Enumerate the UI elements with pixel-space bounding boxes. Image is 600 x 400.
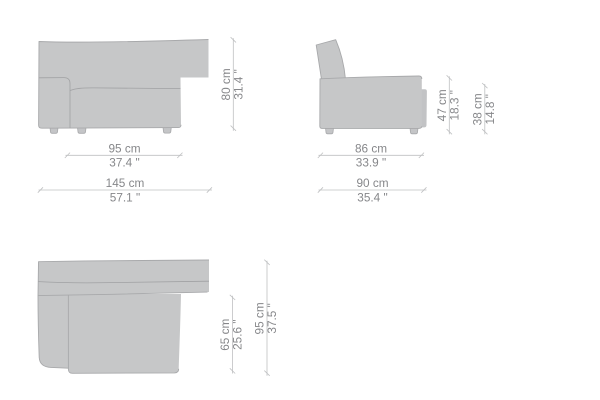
svg-text:31.4 ": 31.4 " xyxy=(231,69,245,99)
svg-text:90 cm: 90 cm xyxy=(356,176,388,190)
svg-text:25.6 ": 25.6 " xyxy=(231,319,245,349)
svg-text:14.8 ": 14.8 " xyxy=(483,94,497,124)
svg-text:18.3 ": 18.3 " xyxy=(447,90,461,120)
svg-text:57.1 ": 57.1 " xyxy=(110,190,140,204)
svg-text:33.9 ": 33.9 " xyxy=(356,156,386,170)
svg-text:37.4 ": 37.4 " xyxy=(109,156,139,170)
svg-text:35.4 ": 35.4 " xyxy=(357,190,387,204)
svg-text:145 cm: 145 cm xyxy=(106,176,145,190)
svg-text:37.5 ": 37.5 " xyxy=(265,303,279,333)
svg-text:95 cm: 95 cm xyxy=(108,141,140,155)
svg-text:86 cm: 86 cm xyxy=(355,141,387,155)
